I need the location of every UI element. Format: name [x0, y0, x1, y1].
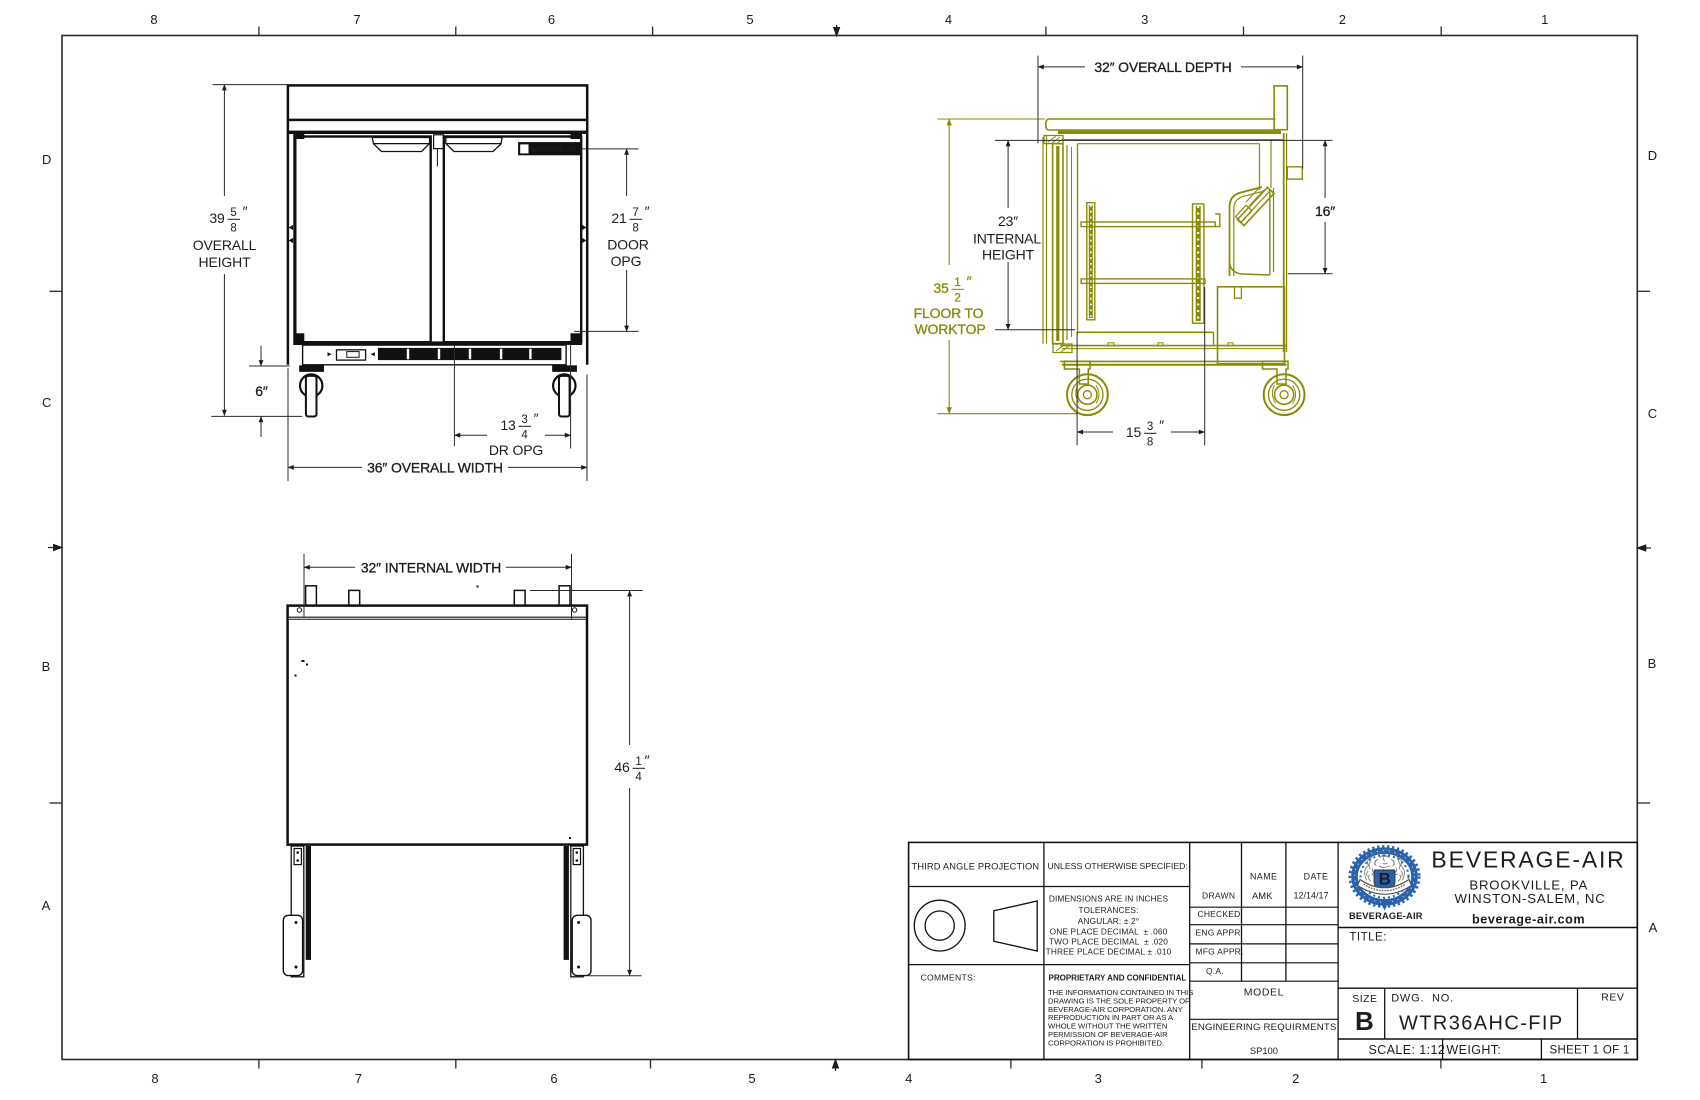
svg-text:DWG. NO.: DWG. NO.	[1391, 993, 1454, 1005]
svg-text:FLOOR TO: FLOOR TO	[914, 305, 984, 321]
svg-text:B: B	[1379, 870, 1391, 889]
svg-text:35: 35	[933, 280, 949, 296]
svg-text:2: 2	[1339, 12, 1346, 27]
svg-text:NAME: NAME	[1250, 872, 1277, 882]
svg-text:MODEL: MODEL	[1244, 986, 1284, 998]
svg-text:WORKTOP: WORKTOP	[914, 321, 985, 337]
svg-text:1: 1	[635, 756, 641, 768]
svg-text:16″: 16″	[1315, 203, 1335, 219]
svg-text:ONE PLACE DECIMAL ± .060: ONE PLACE DECIMAL ± .060	[1050, 927, 1168, 937]
svg-text:COMMENTS:: COMMENTS:	[921, 973, 976, 983]
svg-text:1: 1	[1541, 12, 1548, 27]
svg-text:B: B	[1648, 656, 1657, 671]
svg-text:D: D	[42, 152, 51, 167]
svg-text:″: ″	[645, 203, 650, 219]
svg-text:4: 4	[905, 1071, 912, 1086]
svg-text:A: A	[42, 898, 51, 913]
svg-text:7: 7	[632, 207, 638, 219]
svg-text:PROPRIETARY AND CONFIDENTIAL: PROPRIETARY AND CONFIDENTIAL	[1049, 974, 1187, 983]
svg-text:SCALE: 1:12: SCALE: 1:12	[1369, 1043, 1446, 1057]
svg-text:HEIGHT: HEIGHT	[982, 247, 1035, 263]
svg-text:D: D	[1648, 148, 1657, 163]
svg-text:″: ″	[534, 410, 539, 426]
svg-text:TWO PLACE DECIMAL ± .020: TWO PLACE DECIMAL ± .020	[1049, 937, 1168, 947]
svg-text:C: C	[42, 395, 51, 410]
svg-text:HEIGHT: HEIGHT	[199, 254, 252, 270]
svg-text:ENGINEERING REQUIRMENTS: ENGINEERING REQUIRMENTS	[1191, 1022, 1336, 1033]
svg-text:8: 8	[151, 1071, 158, 1086]
svg-text:BEVERAGE-AIR: BEVERAGE-AIR	[1431, 846, 1625, 872]
svg-text:7: 7	[353, 12, 360, 27]
svg-text:5: 5	[748, 1071, 755, 1086]
svg-text:THIRD ANGLE PROJECTION: THIRD ANGLE PROJECTION	[912, 862, 1040, 872]
svg-text:ANGULAR: ± 2°: ANGULAR: ± 2°	[1078, 916, 1139, 926]
svg-text:8: 8	[632, 223, 638, 235]
svg-text:″: ″	[967, 273, 972, 289]
svg-text:2: 2	[954, 293, 960, 305]
svg-text:15: 15	[1126, 424, 1142, 440]
svg-text:AMK: AMK	[1252, 890, 1273, 901]
svg-text:39: 39	[209, 210, 225, 226]
svg-text:SP100: SP100	[1250, 1045, 1278, 1056]
svg-text:INTERNAL: INTERNAL	[973, 231, 1041, 247]
svg-text:1: 1	[954, 277, 960, 289]
svg-text:5: 5	[230, 207, 236, 219]
svg-text:Q.A.: Q.A.	[1206, 966, 1224, 976]
svg-text:1: 1	[1540, 1071, 1547, 1086]
svg-text:BEVERAGE-AIR: BEVERAGE-AIR	[1349, 911, 1423, 921]
svg-text:4: 4	[635, 772, 642, 784]
svg-text:36″ OVERALL WIDTH: 36″ OVERALL WIDTH	[367, 459, 503, 475]
svg-text:3: 3	[1147, 421, 1153, 433]
svg-text:TITLE:: TITLE:	[1349, 932, 1387, 944]
svg-text:DRAWN: DRAWN	[1202, 891, 1235, 901]
svg-text:REV: REV	[1601, 992, 1624, 1004]
svg-text:3: 3	[1141, 12, 1148, 27]
svg-text:46: 46	[614, 759, 630, 775]
svg-text:ENG APPR.: ENG APPR.	[1196, 928, 1244, 938]
svg-text:B: B	[1355, 1006, 1374, 1036]
svg-text:32″ OVERALL DEPTH: 32″ OVERALL DEPTH	[1094, 59, 1231, 75]
svg-text:SHEET 1 OF 1: SHEET 1 OF 1	[1550, 1045, 1630, 1057]
svg-text:5: 5	[746, 12, 753, 27]
svg-text:DOOR: DOOR	[607, 237, 648, 253]
svg-text:B: B	[42, 659, 51, 674]
svg-text:DR OPG: DR OPG	[489, 442, 543, 458]
svg-text:C: C	[1648, 406, 1657, 421]
svg-text:DIMENSIONS ARE IN INCHES: DIMENSIONS ARE IN INCHES	[1049, 894, 1169, 904]
svg-text:TOLERANCES:: TOLERANCES:	[1078, 905, 1138, 915]
svg-text:8: 8	[150, 12, 157, 27]
svg-text:WEIGHT:: WEIGHT:	[1446, 1043, 1501, 1057]
svg-text:3: 3	[521, 414, 527, 426]
svg-text:13: 13	[500, 417, 516, 433]
svg-text:A: A	[1649, 920, 1658, 935]
svg-text:7: 7	[355, 1071, 362, 1086]
svg-text:12/14/17: 12/14/17	[1294, 891, 1329, 901]
svg-text:8: 8	[230, 223, 236, 235]
svg-text:4: 4	[945, 12, 952, 27]
svg-text:THREE PLACE DECIMAL ± .010: THREE PLACE DECIMAL ± .010	[1046, 947, 1172, 957]
svg-text:8: 8	[1147, 437, 1153, 449]
svg-text:″: ″	[645, 752, 650, 768]
svg-text:″: ″	[243, 203, 248, 219]
svg-text:6: 6	[550, 1071, 557, 1086]
svg-text:3: 3	[1095, 1071, 1102, 1086]
svg-text:DATE: DATE	[1304, 872, 1329, 882]
svg-text:UNLESS OTHERWISE SPECIFIED:: UNLESS OTHERWISE SPECIFIED:	[1048, 861, 1188, 871]
svg-text:OVERALL: OVERALL	[193, 237, 257, 253]
svg-text:beverage-air.com: beverage-air.com	[1472, 913, 1585, 927]
svg-text:″: ″	[1159, 417, 1164, 433]
svg-text:OPG: OPG	[611, 253, 642, 269]
svg-text:WINSTON-SALEM, NC: WINSTON-SALEM, NC	[1454, 891, 1605, 906]
svg-text:MFG APPR.: MFG APPR.	[1196, 947, 1244, 957]
svg-text:WTR36AHC-FIP: WTR36AHC-FIP	[1399, 1013, 1564, 1035]
svg-text:2: 2	[1292, 1071, 1299, 1086]
svg-text:23″: 23″	[998, 213, 1018, 229]
svg-text:21: 21	[611, 210, 627, 226]
svg-text:CHECKED: CHECKED	[1198, 909, 1241, 919]
svg-text:SIZE: SIZE	[1352, 993, 1377, 1005]
svg-text:BEVERAGE-AIR: BEVERAGE-AIR	[531, 147, 576, 154]
svg-text:CORPORATION IS PROHIBITED.: CORPORATION IS PROHIBITED.	[1048, 1038, 1164, 1047]
svg-text:4: 4	[521, 430, 528, 442]
svg-text:6″: 6″	[255, 383, 268, 399]
svg-text:32″ INTERNAL WIDTH: 32″ INTERNAL WIDTH	[361, 559, 501, 575]
svg-text:6: 6	[548, 12, 555, 27]
